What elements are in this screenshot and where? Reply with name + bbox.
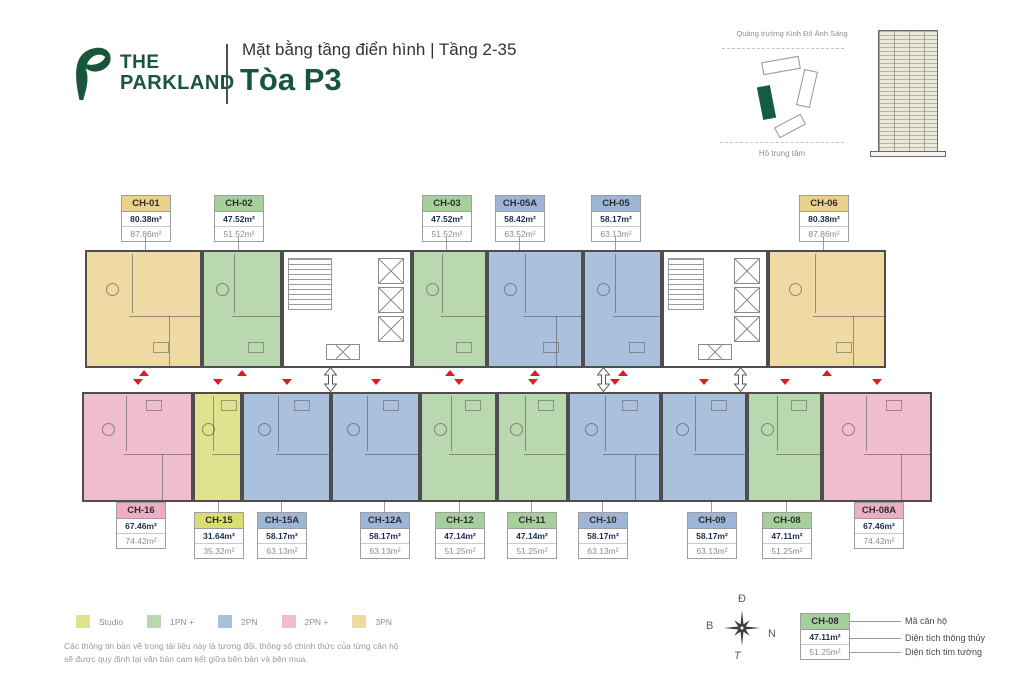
key-label-area2: Diện tích tim tường — [905, 647, 982, 657]
unit-code: CH-15A — [258, 513, 306, 529]
unit-area-gross: 51.25m² — [508, 544, 556, 558]
entrance-marker-CH-15A — [282, 379, 292, 385]
interior-wall — [278, 396, 279, 451]
unit-CH-10 — [568, 392, 661, 502]
furniture-icon — [836, 342, 852, 353]
key-callout-line — [849, 652, 901, 653]
interior-wall — [813, 316, 884, 317]
compass-label-west: T — [734, 650, 741, 662]
unit-CH-06 — [768, 250, 886, 368]
unit-area-net: 80.38m² — [800, 212, 848, 227]
interior-wall — [525, 396, 526, 451]
interior-wall — [524, 454, 567, 455]
unit-label-CH-08A: CH-08A67.46m²74.42m² — [854, 502, 904, 549]
logo-text-parkland: PARKLAND — [120, 72, 235, 95]
legend-label: 1PN + — [170, 617, 194, 627]
furniture-icon — [248, 342, 264, 353]
table-icon — [761, 423, 774, 436]
unit-area-gross: 63.13m² — [579, 544, 627, 558]
stairs-icon — [668, 258, 704, 310]
elevator-icon — [378, 258, 404, 284]
unit-CH-01 — [85, 250, 202, 368]
entrance-marker-CH-05 — [618, 370, 628, 376]
minimap-bottom-label: Hồ trung tâm — [722, 149, 842, 158]
interior-wall — [615, 254, 616, 313]
parkland-logo-icon — [70, 46, 116, 105]
unit-area-gross: 63.13m² — [592, 227, 640, 241]
unit-area-gross: 51.52m² — [215, 227, 263, 241]
table-icon — [426, 283, 439, 296]
corridor-arrow-icon — [324, 367, 337, 392]
unit-label-CH-11: CH-1147.14m²51.25m² — [507, 512, 557, 559]
legend: Studio1PN +2PN2PN +3PN — [76, 615, 416, 628]
interior-wall — [367, 396, 368, 451]
interior-wall — [365, 454, 418, 455]
furniture-icon — [153, 342, 169, 353]
corridor-arrow-icon — [734, 367, 747, 392]
unit-area-net: 58.17m² — [579, 529, 627, 544]
header-divider — [226, 44, 228, 104]
disclaimer-line-1: Các thông tin bản vẽ trong tài liệu này … — [64, 641, 399, 651]
interior-wall — [777, 396, 778, 451]
interior-wall — [694, 454, 746, 455]
interior-wall — [213, 396, 214, 451]
elevator-icon — [734, 258, 760, 284]
elevator-icon — [378, 316, 404, 342]
unit-area-gross: 51.25m² — [763, 544, 811, 558]
stairs-icon — [288, 258, 332, 310]
sheet-subtitle: Mặt bằng tầng điển hình | Tầng 2-35 — [242, 40, 516, 60]
furniture-icon — [886, 400, 902, 411]
furniture-icon — [146, 400, 162, 411]
unit-area-net: 80.38m² — [122, 212, 170, 227]
compass-label-north: B — [706, 620, 713, 632]
entrance-marker-CH-12A — [371, 379, 381, 385]
unit-code: CH-05A — [496, 196, 544, 212]
unit-area-gross: 63.13m² — [258, 544, 306, 558]
legend-item: 2PN + — [282, 615, 329, 628]
unit-CH-12A — [331, 392, 420, 502]
interior-wall — [864, 454, 930, 455]
interior-wall — [695, 396, 696, 451]
table-icon — [106, 283, 119, 296]
unit-code: CH-16 — [117, 503, 165, 519]
entrance-marker-CH-01 — [139, 370, 149, 376]
elevator-icon — [734, 287, 760, 313]
unit-area-net: 58.17m² — [592, 212, 640, 227]
unit-area-gross: 87.86m² — [800, 227, 848, 241]
furniture-icon — [629, 342, 645, 353]
entrance-marker-CH-16 — [133, 379, 143, 385]
label-connector — [823, 237, 824, 250]
compass-rose-icon — [722, 608, 762, 648]
unit-area-gross: 63.13m² — [361, 544, 409, 558]
unit-area-net: 47.14m² — [508, 529, 556, 544]
legend-swatch — [147, 615, 161, 628]
unit-code: CH-09 — [688, 513, 736, 529]
unit-code: CH-12A — [361, 513, 409, 529]
unit-code: CH-12 — [436, 513, 484, 529]
furniture-icon — [383, 400, 399, 411]
unit-area-gross: 63.52m² — [496, 227, 544, 241]
entrance-marker-CH-12 — [454, 379, 464, 385]
entrance-marker-CH-11 — [528, 379, 538, 385]
entrance-marker-CH-15 — [213, 379, 223, 385]
interior-wall — [603, 454, 659, 455]
unit-CH-12 — [420, 392, 497, 502]
key-label-code: Mã căn hộ — [905, 616, 947, 626]
logo-text-the: THE — [120, 52, 160, 74]
interior-wall — [853, 316, 854, 366]
table-icon — [202, 423, 215, 436]
furniture-icon — [791, 400, 807, 411]
interior-wall — [442, 254, 443, 313]
label-connector — [531, 502, 532, 512]
elevator-icon — [326, 344, 360, 360]
entrance-marker-CH-06 — [822, 370, 832, 376]
legend-label: 2PN + — [305, 617, 329, 627]
unit-label-CH-16: CH-1667.46m²74.42m² — [116, 502, 166, 549]
unit-area-net: 58.17m² — [361, 529, 409, 544]
legend-item: Studio — [76, 615, 123, 628]
entrance-marker-CH-08 — [780, 379, 790, 385]
unit-CH-03 — [412, 250, 487, 368]
interior-wall — [232, 316, 280, 317]
unit-code: CH-08A — [855, 503, 903, 519]
interior-wall — [635, 454, 636, 500]
unit-CH-15A — [242, 392, 331, 502]
unit-label-CH-12: CH-1247.14m²51.25m² — [435, 512, 485, 559]
unit-label-CH-03: CH-0347.52m²51.52m² — [422, 195, 472, 242]
minimap-building — [774, 114, 806, 139]
interior-wall — [126, 396, 127, 451]
elevator-icon — [698, 344, 732, 360]
legend-label: 3PN — [375, 617, 392, 627]
furniture-icon — [465, 400, 481, 411]
unit-CH-09 — [661, 392, 747, 502]
furniture-icon — [538, 400, 554, 411]
entrance-marker-CH-10 — [610, 379, 620, 385]
minimap-building — [761, 56, 801, 75]
furniture-icon — [456, 342, 472, 353]
unit-area-net: 31.64m² — [195, 529, 243, 544]
interior-wall — [605, 396, 606, 451]
legend-item: 1PN + — [147, 615, 194, 628]
unit-area-gross: 51.52m² — [423, 227, 471, 241]
key-sample-area2: 51.25m² — [801, 645, 849, 659]
entrance-marker-CH-08A — [872, 379, 882, 385]
key-sample-label: CH-08 47.11m² 51.25m² — [800, 613, 850, 660]
furniture-icon — [221, 400, 237, 411]
interior-wall — [451, 396, 452, 451]
key-callout-line — [849, 638, 901, 639]
interior-wall — [525, 254, 526, 313]
table-icon — [347, 423, 360, 436]
compass-label-south: N — [768, 628, 776, 640]
legend-swatch — [282, 615, 296, 628]
key-label-area1: Diện tích thông thủy — [905, 633, 985, 643]
table-icon — [434, 423, 447, 436]
legend-swatch — [218, 615, 232, 628]
label-connector — [446, 237, 447, 250]
unit-CH-08 — [747, 392, 822, 502]
unit-CH-05A — [487, 250, 583, 368]
legend-label: 2PN — [241, 617, 258, 627]
unit-area-gross: 74.42m² — [117, 534, 165, 548]
key-sample-code: CH-08 — [801, 614, 849, 630]
disclaimer-line-2: sẽ được quy định tại văn bản cam kết giữ… — [64, 654, 308, 664]
unit-label-CH-09: CH-0958.17m²63.13m² — [687, 512, 737, 559]
label-connector — [145, 237, 146, 250]
interior-wall — [449, 454, 495, 455]
label-connector — [615, 237, 616, 250]
unit-label-CH-15: CH-1531.64m²35.32m² — [194, 512, 244, 559]
unit-CH-11 — [497, 392, 568, 502]
interior-wall — [169, 316, 170, 366]
label-connector — [281, 502, 282, 512]
label-connector — [711, 502, 712, 512]
label-connector — [786, 502, 787, 512]
minimap-building-p3-highlight — [757, 85, 776, 120]
unit-area-net: 47.52m² — [215, 212, 263, 227]
minimap-building — [796, 69, 818, 108]
unit-CH-08A — [822, 392, 932, 502]
unit-code: CH-05 — [592, 196, 640, 212]
unit-area-net: 58.17m² — [688, 529, 736, 544]
unit-area-gross: 51.25m² — [436, 544, 484, 558]
tower-elevation-drawing — [878, 30, 938, 152]
unit-label-CH-08: CH-0847.11m²51.25m² — [762, 512, 812, 559]
interior-wall — [212, 454, 241, 455]
entrance-marker-CH-03 — [445, 370, 455, 376]
furniture-icon — [543, 342, 559, 353]
label-connector — [602, 502, 603, 512]
unit-code: CH-11 — [508, 513, 556, 529]
unit-code: CH-03 — [423, 196, 471, 212]
interior-wall — [815, 254, 816, 313]
sheet-title: Tòa P3 — [240, 62, 342, 98]
label-connector — [519, 237, 520, 250]
interior-wall — [162, 454, 163, 500]
unit-area-net: 47.14m² — [436, 529, 484, 544]
elevator-icon — [734, 316, 760, 342]
interior-wall — [124, 454, 191, 455]
unit-label-CH-05: CH-0558.17m²63.13m² — [591, 195, 641, 242]
interior-wall — [613, 316, 660, 317]
unit-code: CH-06 — [800, 196, 848, 212]
legend-item: 2PN — [218, 615, 258, 628]
minimap-dashed-line-bottom — [720, 142, 844, 143]
elevator-icon — [378, 287, 404, 313]
interior-wall — [901, 454, 902, 500]
table-icon — [585, 423, 598, 436]
floor-plan-sheet: THE PARKLAND Mặt bằng tầng điển hình | T… — [0, 0, 1024, 689]
table-icon — [842, 423, 855, 436]
unit-label-CH-10: CH-1058.17m²63.13m² — [578, 512, 628, 559]
corridor-arrow-icon — [597, 367, 610, 392]
label-connector — [238, 237, 239, 250]
furniture-icon — [294, 400, 310, 411]
unit-label-CH-15A: CH-15A58.17m²63.13m² — [257, 512, 307, 559]
unit-CH-16 — [82, 392, 193, 502]
interior-wall — [866, 396, 867, 451]
unit-area-net: 67.46m² — [117, 519, 165, 534]
unit-code: CH-15 — [195, 513, 243, 529]
unit-CH-02 — [202, 250, 282, 368]
unit-label-CH-02: CH-0247.52m²51.52m² — [214, 195, 264, 242]
label-connector — [384, 502, 385, 512]
entrance-marker-CH-02 — [237, 370, 247, 376]
unit-area-net: 58.17m² — [258, 529, 306, 544]
label-connector — [218, 502, 219, 512]
unit-area-net: 58.42m² — [496, 212, 544, 227]
unit-label-CH-05A: CH-05A58.42m²63.52m² — [495, 195, 545, 242]
label-connector — [459, 502, 460, 512]
table-icon — [258, 423, 271, 436]
unit-area-gross: 74.42m² — [855, 534, 903, 548]
unit-area-gross: 35.32m² — [195, 544, 243, 558]
minimap-dashed-line-top — [722, 48, 844, 49]
furniture-icon — [622, 400, 638, 411]
unit-area-gross: 63.13m² — [688, 544, 736, 558]
unit-code: CH-02 — [215, 196, 263, 212]
interior-wall — [129, 316, 199, 317]
interior-wall — [776, 454, 821, 455]
entrance-marker-CH-05A — [530, 370, 540, 376]
unit-label-CH-12A: CH-12A58.17m²63.13m² — [360, 512, 410, 559]
legend-swatch — [76, 615, 90, 628]
key-sample-area1: 47.11m² — [801, 630, 849, 645]
legend-swatch — [352, 615, 366, 628]
unit-code: CH-10 — [579, 513, 627, 529]
interior-wall — [132, 254, 133, 313]
interior-wall — [276, 454, 329, 455]
interior-wall — [234, 254, 235, 313]
unit-code: CH-01 — [122, 196, 170, 212]
unit-code: CH-08 — [763, 513, 811, 529]
unit-area-gross: 87.86m² — [122, 227, 170, 241]
tower-elevation-base — [870, 151, 946, 157]
unit-CH-05 — [583, 250, 662, 368]
unit-label-CH-01: CH-0180.38m²87.86m² — [121, 195, 171, 242]
key-callout-line — [849, 621, 901, 622]
interior-wall — [523, 316, 581, 317]
legend-item: 3PN — [352, 615, 392, 628]
interior-wall — [556, 316, 557, 366]
furniture-icon — [711, 400, 727, 411]
unit-label-CH-06: CH-0680.38m²87.86m² — [799, 195, 849, 242]
compass-label-east: Đ — [738, 593, 746, 605]
unit-area-net: 47.11m² — [763, 529, 811, 544]
legend-label: Studio — [99, 617, 123, 627]
table-icon — [102, 423, 115, 436]
minimap-top-label: Quảng trường Kinh Đô Ánh Sáng — [722, 29, 862, 38]
unit-area-net: 47.52m² — [423, 212, 471, 227]
entrance-marker-CH-09 — [699, 379, 709, 385]
table-icon — [510, 423, 523, 436]
unit-area-net: 67.46m² — [855, 519, 903, 534]
interior-wall — [441, 316, 486, 317]
